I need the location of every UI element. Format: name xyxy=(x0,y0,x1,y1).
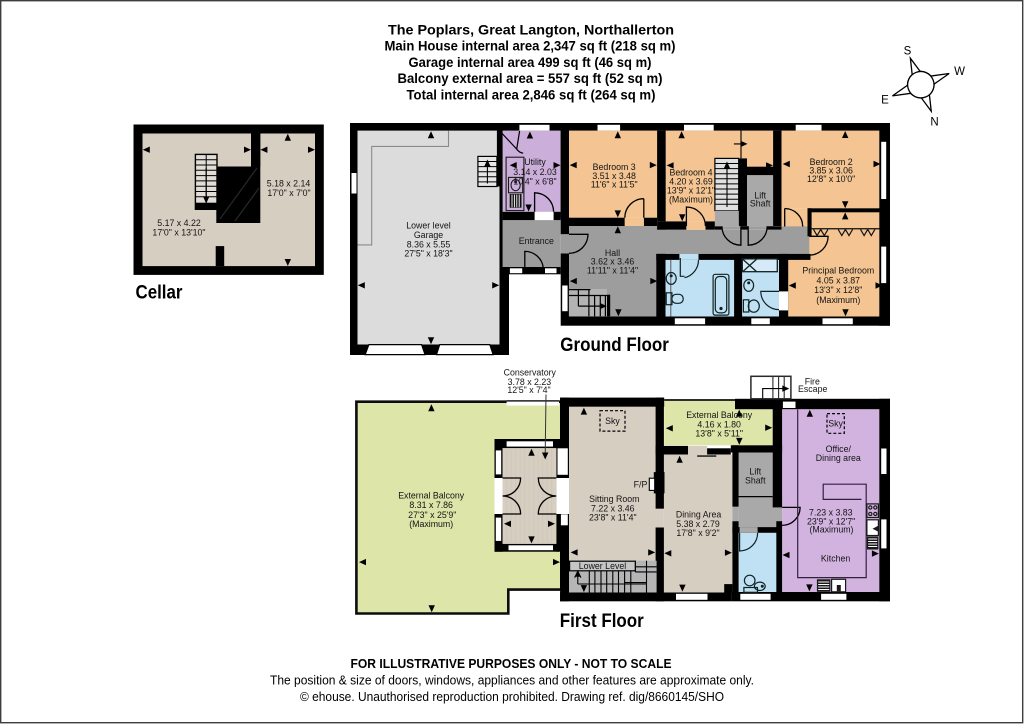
svg-text:The Poplars, Great Langton, No: The Poplars, Great Langton, Northallerto… xyxy=(388,21,674,37)
svg-text:13'8" x 5'11": 13'8" x 5'11" xyxy=(695,429,743,439)
svg-text:© ehouse. Unauthorised reprodu: © ehouse. Unauthorised reproduction proh… xyxy=(300,689,724,704)
svg-text:17'0" x 7'0": 17'0" x 7'0" xyxy=(267,188,310,198)
svg-text:23'8" x 11'4": 23'8" x 11'4" xyxy=(589,513,637,523)
svg-text:12'8" x 10'0": 12'8" x 10'0" xyxy=(807,174,855,184)
svg-text:FOR ILLUSTRATIVE PURPOSES ONLY: FOR ILLUSTRATIVE PURPOSES ONLY - NOT TO … xyxy=(351,656,672,671)
svg-text:Utility: Utility xyxy=(524,157,546,167)
svg-text:Garage internal area 499 sq ft: Garage internal area 499 sq ft (46 sq m) xyxy=(409,54,652,70)
svg-text:The position & size of doors,: The position & size of doors, windows, a… xyxy=(270,673,754,688)
svg-text:Sky: Sky xyxy=(605,416,620,426)
svg-text:First Floor: First Floor xyxy=(560,610,644,632)
svg-text:Total internal area 2,846 sq f: Total internal area 2,846 sq ft (264 sq … xyxy=(407,87,656,103)
svg-text:Entrance: Entrance xyxy=(519,236,554,246)
svg-text:(Maximum): (Maximum) xyxy=(409,519,453,529)
svg-text:Balcony external area = 557 sq: Balcony external area = 557 sq ft (52 sq… xyxy=(398,70,663,86)
svg-text:8.31 x 7.86: 8.31 x 7.86 xyxy=(409,500,453,510)
svg-text:E: E xyxy=(881,95,889,107)
svg-text:4.05 x 3.87: 4.05 x 3.87 xyxy=(817,275,861,285)
svg-text:(Maximum): (Maximum) xyxy=(810,525,854,535)
svg-text:(Maximum): (Maximum) xyxy=(669,195,713,205)
svg-text:11'11" x 11'4": 11'11" x 11'4" xyxy=(587,265,638,275)
svg-text:External Balcony: External Balcony xyxy=(398,490,465,500)
svg-text:Shaft: Shaft xyxy=(745,476,766,486)
svg-text:10'4" x 6'8": 10'4" x 6'8" xyxy=(513,176,556,186)
svg-text:17'8" x 9'2": 17'8" x 9'2" xyxy=(676,528,719,538)
svg-text:Kitchen: Kitchen xyxy=(821,554,850,564)
svg-text:Dining area: Dining area xyxy=(816,453,861,463)
svg-text:13'3" x 12'8": 13'3" x 12'8" xyxy=(814,285,862,295)
svg-text:Sky: Sky xyxy=(828,419,843,429)
svg-text:17'0" x 13'10": 17'0" x 13'10" xyxy=(152,228,205,238)
svg-text:Ground Floor: Ground Floor xyxy=(560,334,669,356)
svg-text:Shaft: Shaft xyxy=(750,199,771,209)
svg-text:W: W xyxy=(954,66,965,78)
svg-text:S: S xyxy=(904,46,912,58)
svg-text:Lower Level: Lower Level xyxy=(579,561,626,571)
svg-text:Principal Bedroom: Principal Bedroom xyxy=(802,265,874,275)
svg-text:Cellar: Cellar xyxy=(136,281,183,303)
svg-text:(Maximum): (Maximum) xyxy=(816,295,860,305)
svg-text:Conservatory: Conservatory xyxy=(504,367,557,377)
svg-text:27'5" x 18'3": 27'5" x 18'3" xyxy=(404,249,452,259)
svg-text:F/P: F/P xyxy=(634,479,648,489)
svg-text:11'6" x 11'5": 11'6" x 11'5" xyxy=(591,180,638,190)
svg-text:Main House internal area 2,347: Main House internal area 2,347 sq ft (21… xyxy=(385,38,676,54)
svg-text:N: N xyxy=(930,117,938,129)
svg-text:Escape: Escape xyxy=(798,384,827,394)
svg-text:12'5" x 7'4": 12'5" x 7'4" xyxy=(507,385,550,395)
